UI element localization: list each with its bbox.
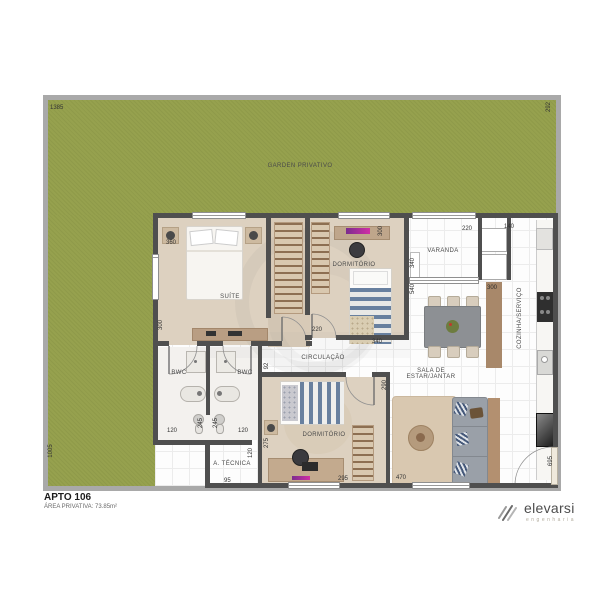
dim-garden-right: 292 [546, 96, 552, 118]
window-varanda-top [412, 212, 476, 219]
dim-wall-540: 540 [410, 278, 416, 300]
wall-atecnica-top [210, 440, 252, 445]
dim-dorm1-door: 220 [312, 327, 322, 333]
label-bwc2: BWC [234, 370, 256, 376]
dim-dorm2-width: 295 [338, 476, 348, 482]
dim-bwc1-width: 120 [167, 428, 177, 434]
wall-bwc-middle [206, 345, 210, 415]
label-dorm2: DORMITÓRIO [288, 432, 360, 438]
wall-dorm1-bottom-a [305, 335, 312, 340]
window-dorm2-bottom [288, 482, 340, 489]
label-cozinha: COZINHA/SERVIÇO [517, 283, 523, 353]
label-bwc1: BWC [168, 370, 190, 376]
dim-garden-left: 1005 [48, 440, 54, 462]
dorm1-door-arc [312, 314, 336, 338]
dim-wall-340: 340 [410, 252, 416, 274]
label-varanda: VARANDA [418, 248, 468, 254]
label-suite: SUÍTE [200, 294, 260, 300]
window-varanda-sala [409, 277, 479, 284]
dim-bwc1-depth: 245 [198, 412, 204, 434]
window-sala-bottom [412, 482, 470, 489]
dorm2-door-arc [346, 377, 374, 405]
floorplan-canvas: GARDEN PRIVATIVO SUÍTE DORMITÓRIO DORMIT… [0, 0, 600, 600]
dim-suite-width: 360 [166, 240, 176, 246]
dim-varanda-depth: 140 [504, 224, 514, 230]
dim-suite-wall-left: 300 [158, 314, 164, 336]
suite-door-arc [282, 317, 306, 341]
wall-dorm2-top-a [262, 372, 346, 377]
apartment-title: APTO 106 [44, 492, 91, 503]
dim-kitchen-top: 300 [487, 285, 497, 291]
wall-suite-bottom-c [251, 341, 282, 346]
label-garden: GARDEN PRIVATIVO [247, 163, 353, 169]
apartment-area: ÁREA PRIVATIVA: 73.85m² [44, 504, 117, 510]
window-dorm1-top [338, 212, 390, 219]
wall-varanda-right [478, 218, 482, 280]
dim-garden-top: 1385 [50, 105, 63, 111]
wall-step-h [153, 440, 210, 445]
dim-bwc2-width: 120 [238, 428, 248, 434]
dim-dorm1-top: 300 [378, 220, 384, 242]
dim-circ-width: 92 [264, 355, 270, 377]
wall-dorm1-bottom-b [336, 335, 406, 340]
dim-entry-height: 695 [548, 450, 554, 472]
wall-closet-divider [305, 218, 310, 315]
brand-tagline: engenharia [526, 517, 576, 523]
wall-suite-bottom-b [197, 341, 223, 346]
dim-dorm1-bottom: 340 [372, 339, 382, 345]
dim-dorm2-right: 290 [382, 374, 388, 396]
brand-name: elevarsi [524, 500, 575, 516]
label-sala: SALA DE ESTAR/JANTAR [398, 368, 464, 380]
wall-bwc-right [258, 341, 262, 443]
wall-closet-stub [306, 341, 312, 346]
dim-sala-width: 470 [396, 475, 406, 481]
dim-atec-height: 120 [248, 442, 254, 464]
brand-logo-icon [496, 498, 520, 524]
dim-atec-width: 95 [224, 478, 231, 484]
wall-suite-bottom-a [153, 341, 169, 346]
label-dorm1: DORMITÓRIO [318, 262, 390, 268]
wall-suite-right [266, 218, 271, 318]
dim-bwc2-depth: 245 [213, 412, 219, 434]
window-suite-top [192, 212, 246, 219]
wall-atecnica-right [258, 443, 262, 488]
window-suite-left [152, 254, 159, 300]
dim-varanda-width: 220 [462, 226, 472, 232]
dim-dorm2-left: 275 [264, 432, 270, 454]
label-circulacao: CIRCULAÇÃO [288, 355, 358, 361]
